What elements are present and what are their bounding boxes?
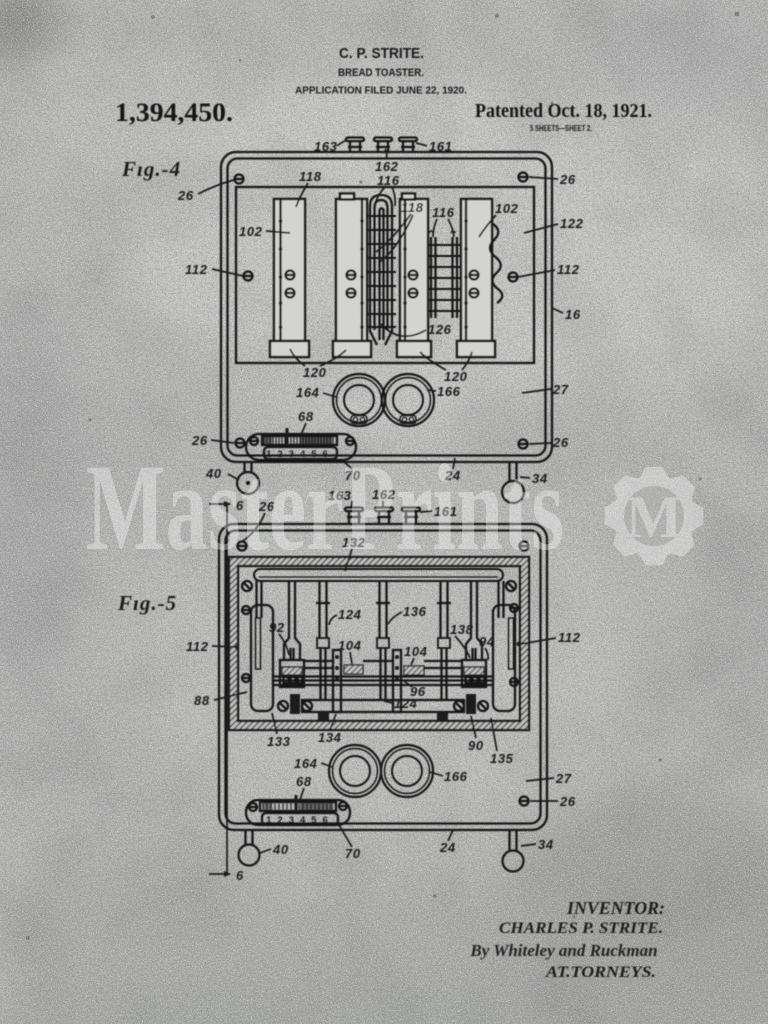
svg-text:126: 126 <box>428 322 452 337</box>
svg-text:102: 102 <box>239 224 263 239</box>
svg-text:C. P. STRITE.: C. P. STRITE. <box>339 45 424 62</box>
svg-text:90: 90 <box>468 738 484 753</box>
svg-text:92: 92 <box>269 620 285 635</box>
svg-text:116: 116 <box>432 205 455 220</box>
svg-text:118: 118 <box>401 200 424 215</box>
svg-text:APPLICATION FILED JUNE 22, 192: APPLICATION FILED JUNE 22, 1920. <box>295 86 467 97</box>
svg-text:122: 122 <box>560 216 584 231</box>
svg-text:162: 162 <box>375 159 399 174</box>
svg-text:118: 118 <box>299 169 322 184</box>
svg-text:161: 161 <box>429 139 453 154</box>
svg-text:70: 70 <box>345 846 361 861</box>
svg-text:94: 94 <box>479 634 495 649</box>
svg-text:102: 102 <box>495 201 519 216</box>
svg-text:112: 112 <box>185 262 208 277</box>
svg-text:133: 133 <box>267 734 291 749</box>
svg-text:Fıg.-5: Fıg.-5 <box>117 591 177 615</box>
svg-text:68: 68 <box>296 774 312 789</box>
svg-text:120: 120 <box>444 369 468 384</box>
svg-text:24: 24 <box>439 840 456 855</box>
svg-text:104: 104 <box>404 644 428 659</box>
svg-text:34: 34 <box>538 837 554 852</box>
svg-text:164: 164 <box>296 385 320 400</box>
svg-text:BREAD TOASTER.: BREAD TOASTER. <box>338 67 424 79</box>
svg-text:104: 104 <box>338 638 362 653</box>
svg-text:Fıg.-4: Fıg.-4 <box>121 157 181 181</box>
svg-text:164: 164 <box>294 756 318 771</box>
svg-text:134: 134 <box>318 730 342 745</box>
svg-text:1,394,450.: 1,394,450. <box>115 98 233 127</box>
svg-text:166: 166 <box>437 384 461 399</box>
svg-text:By Whiteley and Ruckman: By Whiteley and Ruckman <box>469 941 657 960</box>
svg-text:68: 68 <box>298 409 314 424</box>
svg-text:112: 112 <box>186 639 209 654</box>
svg-text:INVENTOR:: INVENTOR: <box>566 898 665 918</box>
svg-text:26: 26 <box>559 172 576 187</box>
svg-text:138: 138 <box>450 622 474 637</box>
svg-text:5 SHEETS—SHEET 2.: 5 SHEETS—SHEET 2. <box>530 124 592 133</box>
svg-text:AT.TORNEYS.: AT.TORNEYS. <box>545 964 656 981</box>
svg-text:M: M <box>626 484 683 550</box>
svg-text:163: 163 <box>314 139 338 154</box>
svg-text:135: 135 <box>490 751 514 766</box>
svg-text:123456: 123456 <box>266 815 334 826</box>
svg-text:116: 116 <box>377 173 400 188</box>
svg-text:27: 27 <box>555 771 572 786</box>
svg-text:40: 40 <box>272 842 289 857</box>
svg-text:26: 26 <box>559 794 576 809</box>
svg-text:6: 6 <box>236 868 244 883</box>
svg-text:124: 124 <box>338 607 362 622</box>
svg-text:112: 112 <box>557 262 580 277</box>
svg-text:26: 26 <box>177 188 194 203</box>
svg-text:Patented Oct. 18, 1921.: Patented Oct. 18, 1921. <box>475 101 652 122</box>
svg-text:27: 27 <box>552 382 569 397</box>
svg-text:120: 120 <box>303 365 327 380</box>
svg-text:166: 166 <box>444 769 468 784</box>
svg-text:CHARLES P. STRITE.: CHARLES P. STRITE. <box>499 920 663 937</box>
svg-text:112: 112 <box>558 630 581 645</box>
svg-text:88: 88 <box>194 693 210 708</box>
svg-text:16: 16 <box>565 307 581 322</box>
svg-text:124: 124 <box>394 696 418 711</box>
svg-text:136: 136 <box>403 604 427 619</box>
svg-text:MasterPrints: MasterPrints <box>86 439 564 576</box>
